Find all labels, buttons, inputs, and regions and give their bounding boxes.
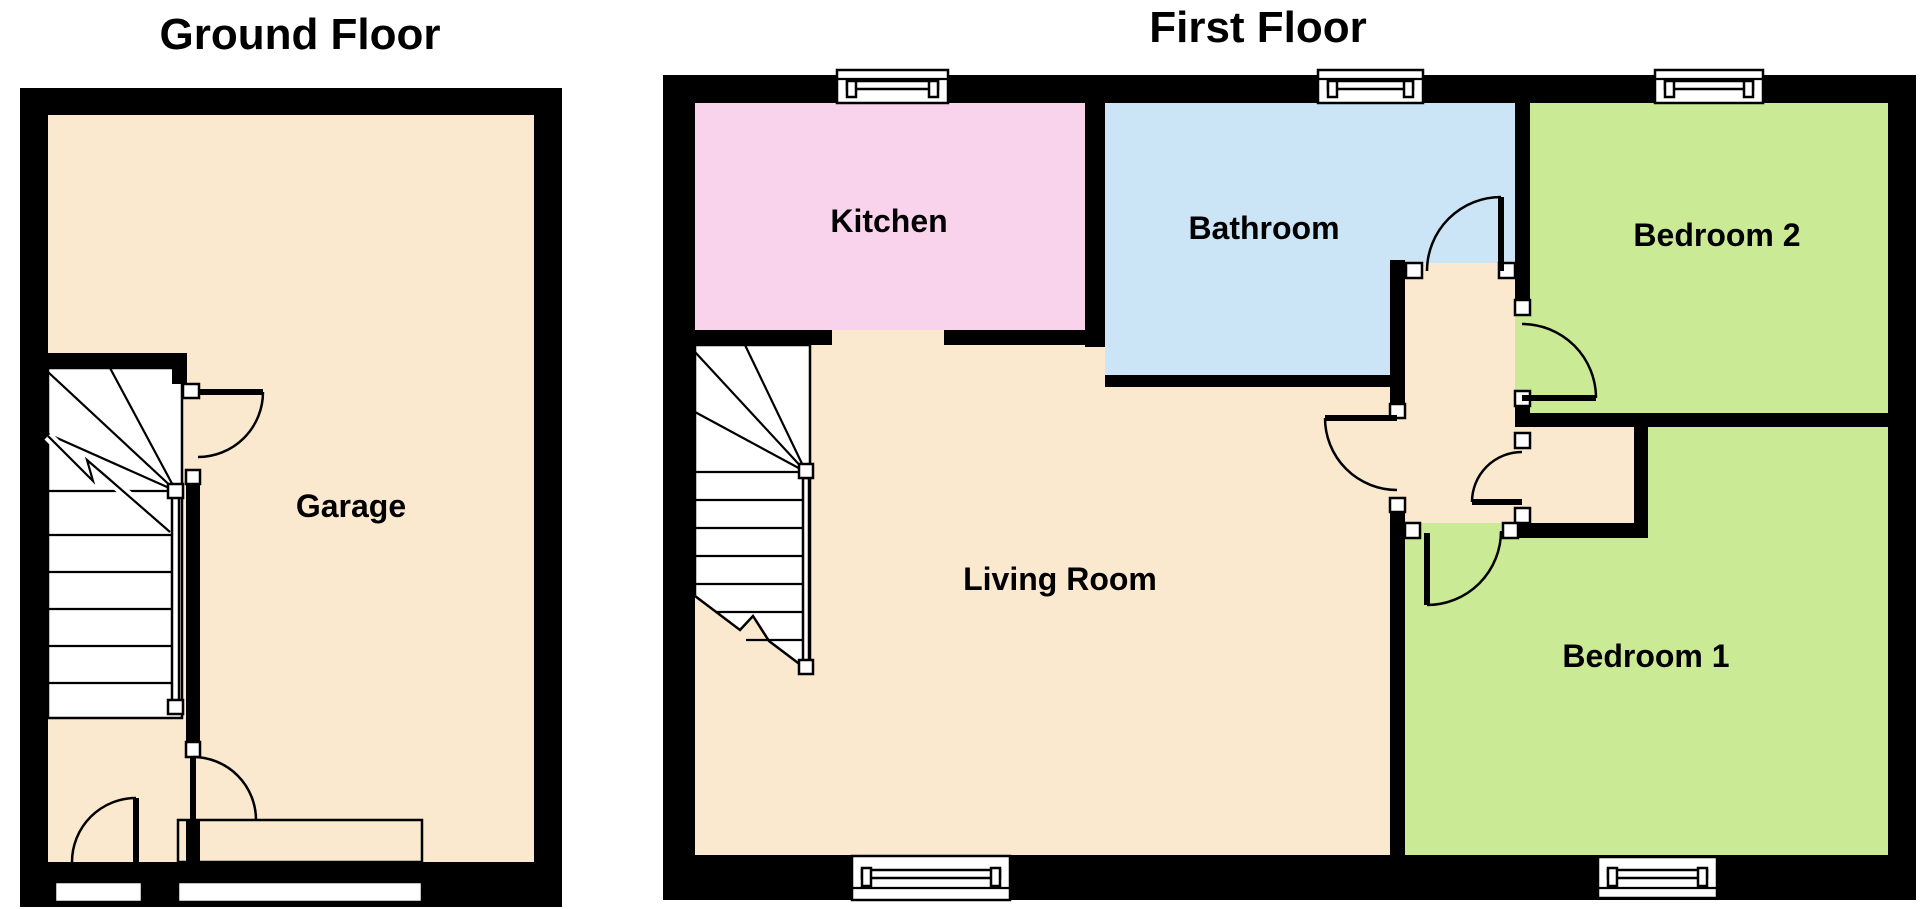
first-floor-plan: First Floor (663, 3, 1916, 900)
kitchen-wall-right (944, 330, 1085, 345)
bathroom-bottom-wall (1105, 375, 1405, 387)
stairwell (48, 368, 182, 718)
living-room-label: Living Room (963, 561, 1157, 597)
kitchen-wall-left (695, 330, 832, 345)
kitchen-window (837, 70, 948, 103)
bedroom1-doorway-floor (1420, 523, 1503, 538)
bedroom2-left-wall (1515, 103, 1530, 300)
living-door-jamb-bottom (1390, 498, 1405, 512)
closet-door-jamb-top (1515, 433, 1530, 448)
bedroom2-bottom-wall (1530, 413, 1888, 427)
stair-newel-bottom (168, 700, 183, 714)
closet-door-jamb-bottom (1515, 508, 1530, 523)
stair-door-jamb (183, 384, 199, 398)
landing-left-wall (1390, 260, 1405, 404)
bedroom2-floor (1530, 103, 1888, 413)
ground-floor-plan: Ground Floor (20, 10, 562, 907)
garage-divider-wall-lower (186, 820, 200, 862)
stair-newel-bottom (799, 660, 813, 674)
kitchen-label: Kitchen (830, 203, 947, 239)
garage-door-threshold (178, 882, 422, 902)
bedroom1-window (1598, 857, 1717, 898)
living-room-window (852, 856, 1010, 900)
floorplan-page: Ground Floor (0, 0, 1920, 909)
stair-handrail (172, 494, 179, 704)
bedroom2-doorway-floor (1515, 315, 1530, 391)
landing-corner-wall (1515, 406, 1530, 427)
kitchen-bathroom-wall (1085, 103, 1105, 347)
garage-door-panel (178, 820, 422, 862)
garage-label: Garage (296, 488, 406, 524)
stair-handrail (803, 478, 809, 662)
closet-right-wall (1634, 427, 1648, 538)
entry-door-threshold (55, 882, 142, 902)
bedroom1-label: Bedroom 1 (1562, 638, 1729, 674)
ground-floor-stairs (48, 368, 183, 718)
stair-top-wall-return (172, 368, 187, 384)
divider-jamb-top (186, 470, 200, 484)
garage-divider-wall (186, 484, 200, 742)
bedroom1-door-jamb-right (1503, 523, 1518, 538)
floorplan-canvas: Ground Floor (0, 0, 1920, 909)
garage-door-jamb (186, 742, 200, 757)
bathroom-label: Bathroom (1188, 210, 1339, 246)
bathroom-window (1318, 70, 1423, 103)
closet-bottom-wall (1518, 523, 1648, 538)
bedroom1-door-jamb-left (1405, 523, 1420, 538)
stair-newel-top (168, 484, 183, 498)
bedroom2-window (1655, 70, 1763, 103)
stair-top-wall (48, 353, 187, 368)
living-bedroom1-wall (1390, 512, 1405, 855)
first-floor-title: First Floor (1149, 3, 1367, 52)
bedroom2-label: Bedroom 2 (1633, 217, 1800, 253)
stair-newel-top (799, 464, 813, 478)
bathroom-door-jamb-left (1406, 263, 1422, 278)
ground-floor-title: Ground Floor (159, 10, 440, 59)
bedroom2-door-jamb-top (1515, 300, 1530, 315)
